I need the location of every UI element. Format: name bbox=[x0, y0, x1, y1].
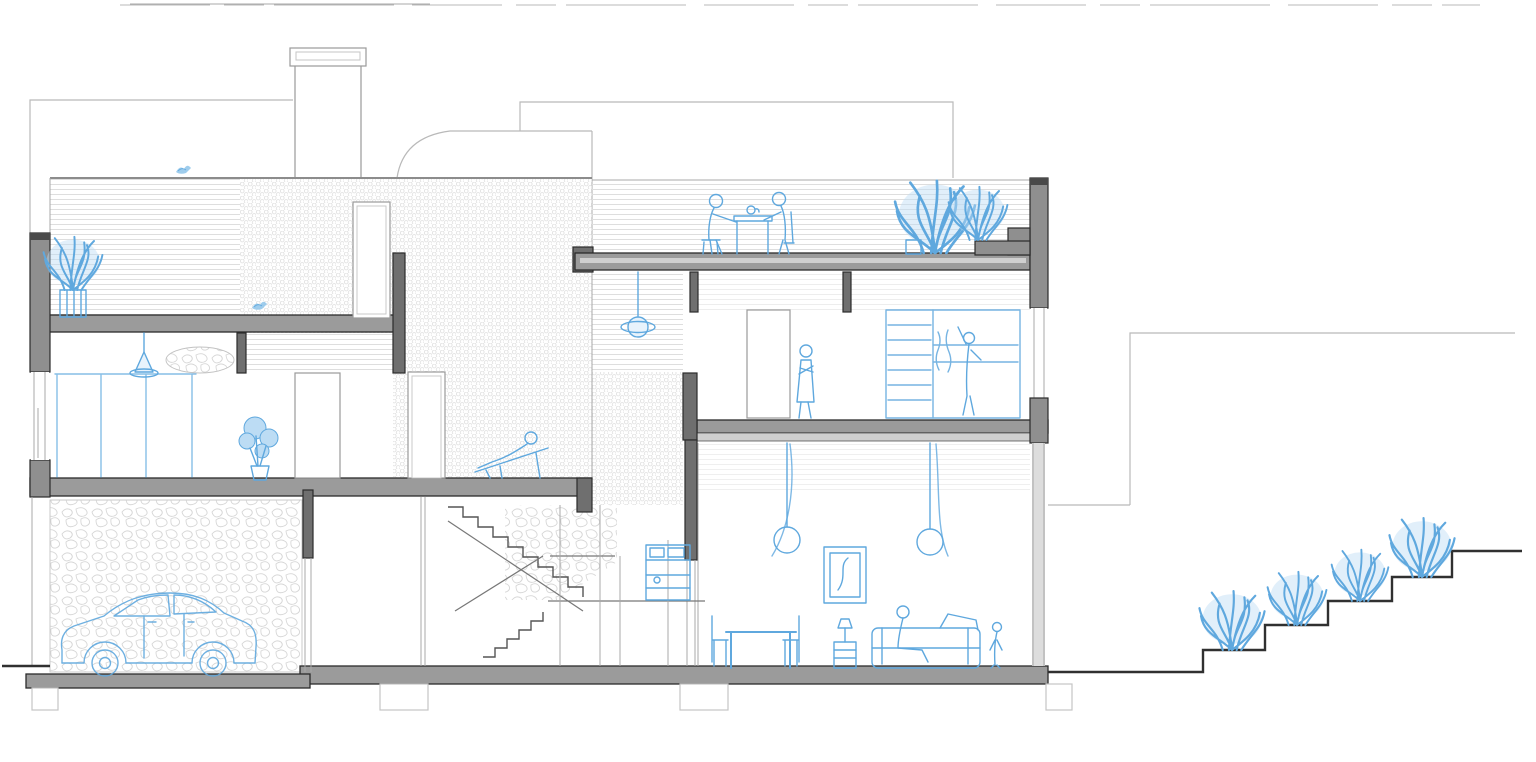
hatch-hall-lower bbox=[592, 372, 683, 505]
bedroom-scene bbox=[797, 310, 1020, 418]
living-left-wall-lower bbox=[687, 560, 695, 666]
garden-bushes bbox=[1199, 518, 1454, 650]
sofa-person bbox=[872, 606, 980, 668]
monstera-plant bbox=[239, 417, 278, 480]
right-wall-mid bbox=[1030, 398, 1048, 443]
hall-bedroom-wall bbox=[683, 373, 697, 440]
central-wall-post bbox=[393, 253, 405, 373]
stair-left-wall bbox=[421, 497, 425, 666]
hatch-left-room-beam bbox=[245, 333, 393, 372]
slab-garage-floor bbox=[26, 674, 310, 688]
hatch-central-wall-upper bbox=[240, 178, 592, 333]
bedroom-window-head-mid bbox=[843, 272, 851, 312]
left-window-mullions bbox=[55, 374, 196, 477]
planter-bench bbox=[975, 241, 1030, 255]
slab-upper-left bbox=[45, 315, 395, 332]
bg-curved-roof bbox=[397, 131, 592, 178]
slab-bedroom-floor bbox=[697, 420, 1048, 433]
bg-outline-far-right bbox=[1130, 333, 1515, 505]
rubble-ledge bbox=[166, 347, 234, 373]
slab-end-cap bbox=[577, 478, 592, 512]
chimney bbox=[290, 48, 366, 178]
right-wall-lower bbox=[1032, 443, 1045, 666]
left-bedroom-door bbox=[295, 373, 340, 478]
garage-door-post bbox=[303, 490, 313, 558]
bg-outline-top-right bbox=[520, 102, 953, 178]
bird-icon bbox=[176, 166, 191, 174]
slab-bedroom-soffit bbox=[697, 433, 1048, 441]
slab-roof-terrace-core bbox=[580, 258, 1026, 263]
wardrobe-person bbox=[958, 327, 981, 415]
courtyard-door bbox=[408, 372, 445, 478]
dining-table-set bbox=[712, 616, 799, 668]
left-exterior-wall-lower bbox=[30, 460, 50, 497]
hatch-bedroom-ceiling bbox=[697, 272, 1030, 312]
cone-pendant-lamp bbox=[130, 333, 158, 377]
section-hatch-fields bbox=[50, 178, 1030, 505]
living-left-wall bbox=[685, 440, 697, 560]
parapet-wall bbox=[1030, 178, 1048, 308]
bedroom-person bbox=[797, 345, 814, 418]
picture-frame bbox=[824, 547, 866, 603]
architectural-section-drawing: Architectural cross-section drawing of a… bbox=[0, 0, 1536, 762]
stair-lower-flight bbox=[483, 612, 543, 657]
garage-door-track bbox=[305, 558, 311, 672]
garage-stone-wall bbox=[50, 500, 302, 672]
right-wall-glazing bbox=[1031, 308, 1047, 398]
bedroom-door bbox=[747, 310, 790, 418]
upper-window bbox=[353, 202, 390, 318]
bedroom-window-head-left bbox=[690, 272, 698, 312]
left-exterior-wall-upper bbox=[30, 233, 50, 372]
wardrobe bbox=[886, 310, 1020, 418]
architectural-section-page: Architectural cross-section drawing of a… bbox=[0, 0, 1536, 762]
side-cabinet-lamp bbox=[834, 619, 856, 668]
left-wall-cap bbox=[30, 233, 50, 240]
hatch-living-ceiling bbox=[697, 443, 1030, 493]
parapet-cap bbox=[1030, 178, 1048, 185]
child-figure bbox=[990, 623, 1002, 669]
left-wall-glazing bbox=[31, 372, 49, 460]
left-room-post bbox=[237, 333, 246, 373]
